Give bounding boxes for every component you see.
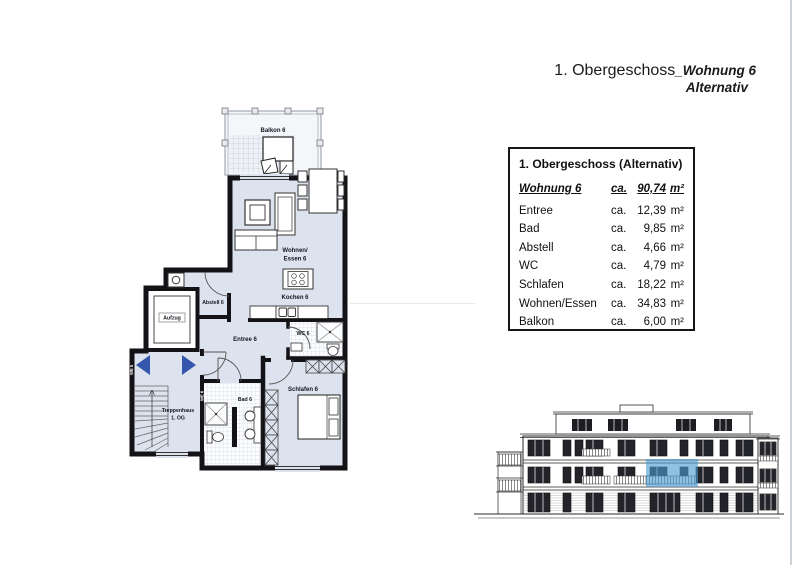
- penthouse: [553, 405, 753, 434]
- label-we5: WE 5: [129, 364, 134, 375]
- label-entree: Entree 6: [233, 337, 257, 343]
- table-row: WCca.4,79m²: [519, 260, 684, 279]
- kitchen-counter: [250, 306, 328, 319]
- cooktop-island-icon: [283, 269, 313, 289]
- area-table-total-row: Wohnung 6 ca. 90,74 m²: [519, 183, 684, 202]
- total-label: Wohnung 6: [519, 183, 611, 195]
- room-name: Balkon: [519, 316, 611, 328]
- scan-line-artifact: [350, 303, 475, 304]
- label-bad: Bad 6: [238, 397, 252, 403]
- scanned-floorplan-page: 1. Obergeschoss_Wohnung 6 Alternativ 1. …: [0, 0, 800, 565]
- main-facade: [523, 436, 768, 514]
- building-elevation-svg: [468, 390, 788, 530]
- bed-icon: [298, 395, 340, 439]
- label-wohnen1: Wohnen/: [282, 248, 308, 254]
- room-name: Schlafen: [519, 279, 611, 291]
- drawing-title: 1. Obergeschoss_Wohnung 6 Alternativ: [554, 62, 756, 96]
- table-row: Wohnen/Essenca.34,83m²: [519, 298, 684, 317]
- area-table: 1. Obergeschoss (Alternativ) Wohnung 6 c…: [508, 147, 695, 331]
- room-area: 9,85: [629, 223, 666, 235]
- room-area: 6,00: [629, 316, 666, 328]
- total-unit: m²: [666, 183, 684, 195]
- right-bay: [756, 436, 780, 514]
- dining-set-icon: [298, 169, 344, 213]
- title-unit: _Wohnung 6: [675, 63, 756, 78]
- label-abstell: Abstell 6: [202, 300, 224, 306]
- table-row: Badca.9,85m²: [519, 223, 684, 242]
- floor-plan-svg: Balkon 6: [123, 103, 355, 475]
- label-we6: WE 6: [200, 390, 205, 401]
- room-area: 4,66: [629, 242, 666, 254]
- closet-column-left: [265, 390, 278, 465]
- room-area: 18,22: [629, 279, 666, 291]
- label-balkon: Balkon 6: [260, 128, 286, 134]
- elevator: Aufzug: [147, 289, 198, 350]
- sideboard-icon: [275, 193, 295, 235]
- balcony-table-icon: [261, 137, 293, 174]
- room-area: 4,79: [629, 260, 666, 272]
- wall-niche: [228, 217, 232, 230]
- building-elevation: [468, 390, 788, 530]
- table-row: Balkonca.6,00m²: [519, 316, 684, 335]
- room-name: WC: [519, 260, 611, 272]
- label-treppenhaus-floor: 1. OG: [171, 416, 185, 422]
- label-wohnen2: Essen 6: [284, 257, 307, 263]
- room-area: 34,83: [629, 298, 666, 310]
- floor-plan: Balkon 6: [123, 103, 355, 475]
- total-prefix: ca.: [611, 183, 629, 195]
- room-name: Entree: [519, 205, 611, 217]
- total-value: 90,74: [629, 183, 666, 195]
- balcony: Balkon 6: [222, 108, 323, 175]
- toilet-icon: [327, 344, 339, 356]
- room-name: Abstell: [519, 242, 611, 254]
- small-sink-icon: [291, 343, 302, 351]
- sink-icon: [279, 308, 287, 317]
- room-area: 12,39: [629, 205, 666, 217]
- title-sub: Alternativ: [554, 80, 756, 96]
- table-row: Entreeca.12,39m²: [519, 205, 684, 224]
- area-table-title: 1. Obergeschoss (Alternativ): [519, 157, 684, 171]
- closet-row-top: [306, 360, 345, 373]
- label-kochen: Kochen 6: [281, 295, 309, 301]
- left-balcony-wing: [496, 452, 523, 514]
- room-name: Wohnen/Essen: [519, 298, 611, 310]
- label-treppenhaus: Treppenhaus: [162, 408, 194, 414]
- label-schlafen: Schlafen 6: [288, 387, 319, 393]
- table-icon: [245, 200, 270, 225]
- table-row: Schlafenca.18,22m²: [519, 279, 684, 298]
- sofa-icon: [235, 230, 277, 250]
- label-aufzug: Aufzug: [163, 316, 181, 322]
- title-line1: 1. Obergeschoss_Wohnung 6: [554, 62, 756, 80]
- highlighted-apartment: [646, 459, 698, 487]
- table-row: Abstellca.4,66m²: [519, 242, 684, 261]
- label-wc: WC 6: [297, 331, 310, 337]
- shower-icon: [317, 322, 343, 342]
- washing-machine-icon: [168, 273, 184, 287]
- toilet-icon: [207, 431, 224, 443]
- shower-icon: [205, 403, 227, 425]
- scan-edge-artifact: [790, 0, 792, 565]
- title-main: 1. Obergeschoss: [554, 62, 675, 79]
- room-name: Bad: [519, 223, 611, 235]
